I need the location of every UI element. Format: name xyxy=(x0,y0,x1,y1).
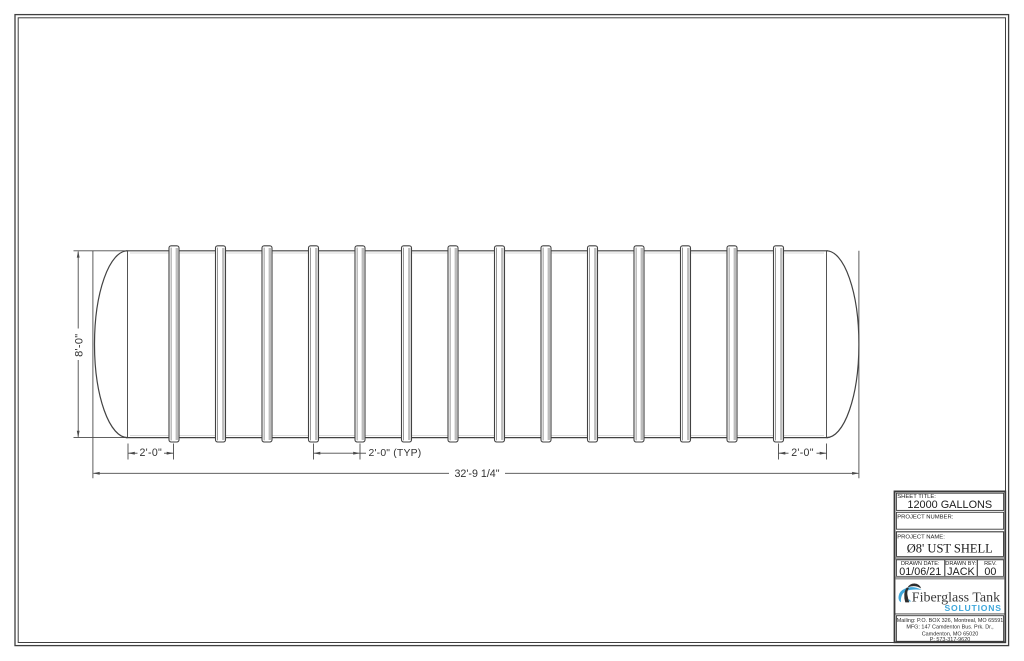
svg-text:00: 00 xyxy=(984,566,996,578)
svg-text:SOLUTIONS: SOLUTIONS xyxy=(944,603,1001,613)
svg-text:32'-9 1/4": 32'-9 1/4" xyxy=(454,468,499,480)
svg-text:P: 573-317-9620: P: 573-317-9620 xyxy=(930,637,971,643)
svg-text:PROJECT NUMBER:: PROJECT NUMBER: xyxy=(897,515,954,521)
svg-text:8'-0": 8'-0" xyxy=(73,333,85,356)
svg-text:JACK: JACK xyxy=(947,566,975,578)
svg-text:2'-0": 2'-0" xyxy=(139,447,162,459)
svg-text:MFG: 147 Camdenton Bus. Prk. D: MFG: 147 Camdenton Bus. Prk. Dr., xyxy=(906,625,994,631)
svg-text:Ø8' UST SHELL: Ø8' UST SHELL xyxy=(907,541,993,555)
svg-text:12000 GALLONS: 12000 GALLONS xyxy=(907,499,992,511)
svg-text:PROJECT NAME:: PROJECT NAME: xyxy=(897,534,945,540)
svg-text:01/06/21: 01/06/21 xyxy=(899,566,941,578)
svg-text:2'-0": 2'-0" xyxy=(791,447,814,459)
svg-text:2'-0" (TYP): 2'-0" (TYP) xyxy=(369,448,422,459)
svg-text:Mailing: P.O. BOX 326, Montrea: Mailing: P.O. BOX 326, Montreal, MO 6559… xyxy=(897,618,1004,624)
